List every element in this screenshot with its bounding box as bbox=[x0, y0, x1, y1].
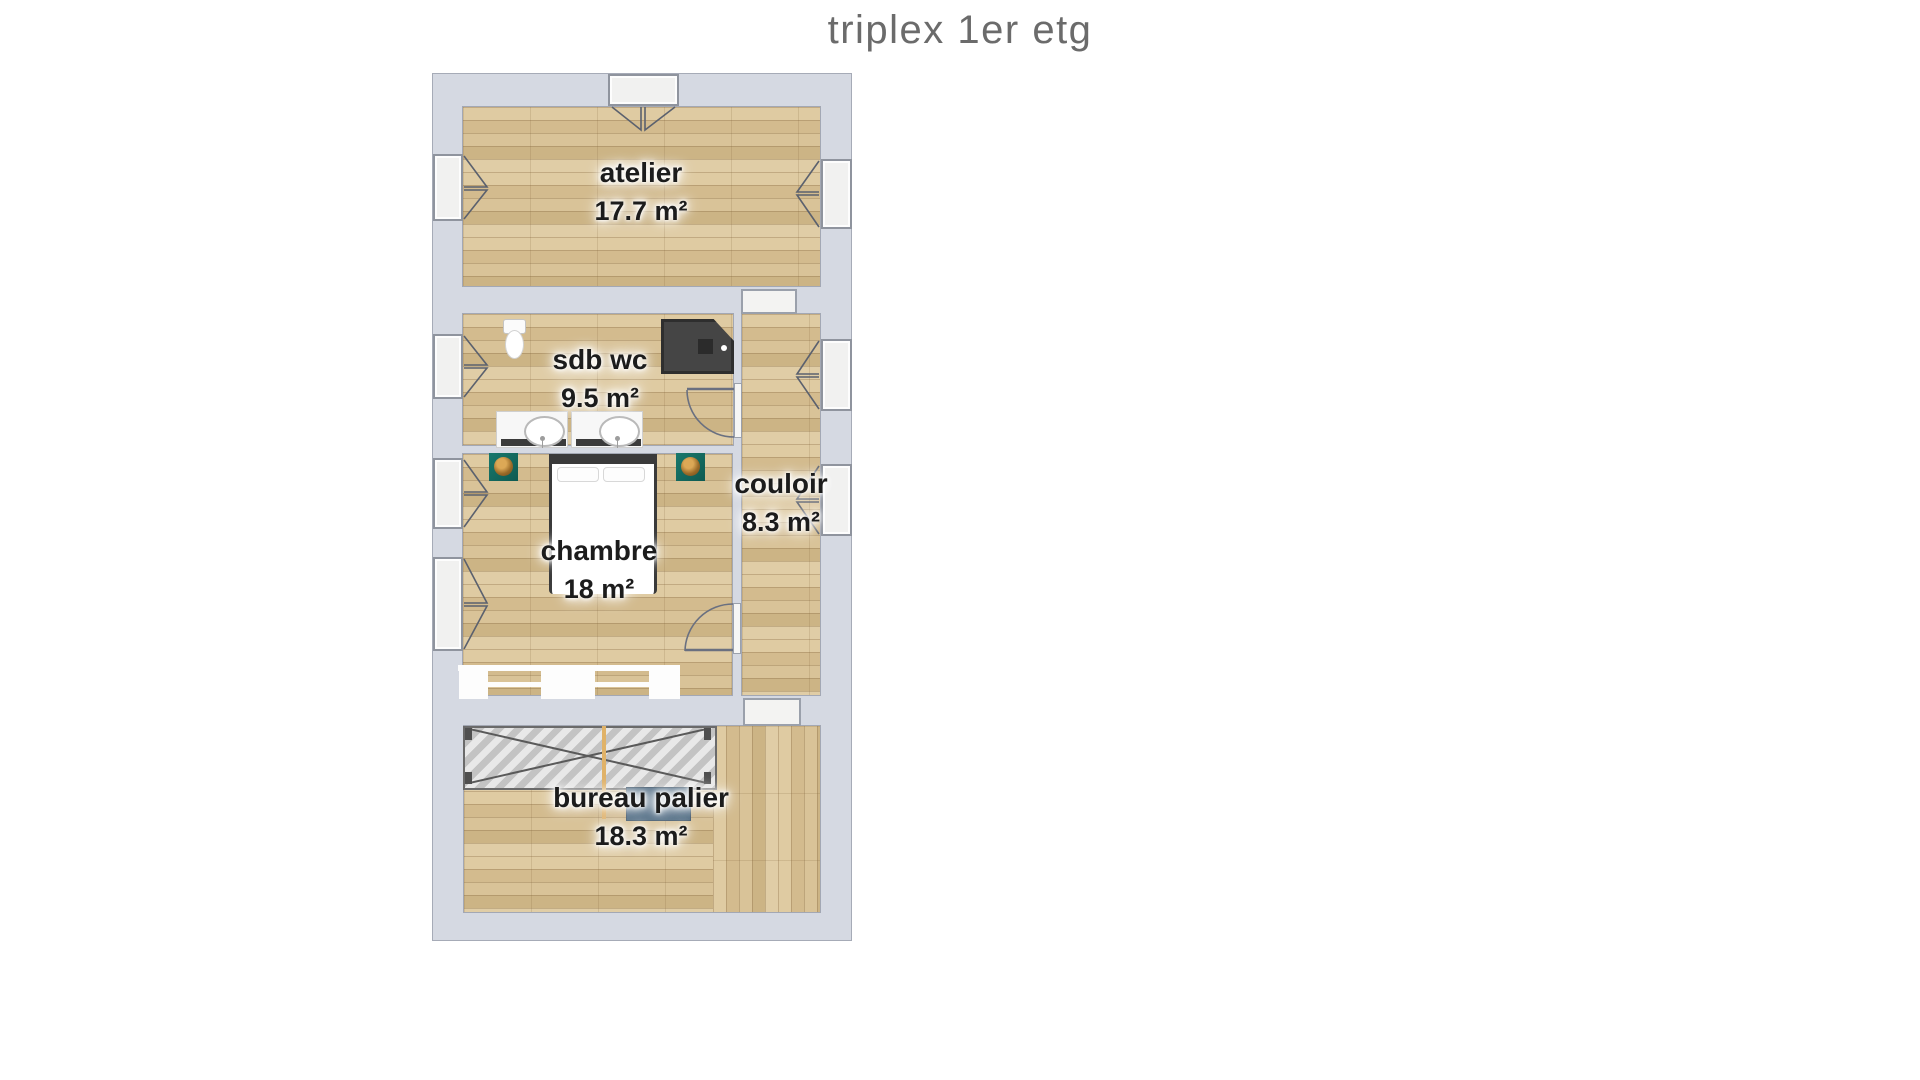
wardrobe-shelf bbox=[488, 682, 541, 687]
passage-couloir-bureau[interactable] bbox=[743, 698, 801, 726]
wardrobe-module bbox=[459, 671, 488, 699]
stair-opening-hatch[interactable] bbox=[463, 726, 717, 790]
vanity-sink-right[interactable] bbox=[571, 411, 643, 448]
hatch-corner bbox=[465, 772, 472, 784]
bureau-vertical-parquet bbox=[713, 726, 820, 912]
window-sdb-left[interactable] bbox=[433, 334, 463, 399]
floorplan-page: triplex 1er etg bbox=[0, 0, 1920, 1080]
pillow-icon bbox=[557, 467, 599, 482]
vanity-sink-left[interactable] bbox=[496, 411, 568, 448]
nightstand-left[interactable] bbox=[489, 453, 518, 481]
lamp-icon bbox=[681, 457, 700, 476]
sink-basin-icon bbox=[524, 416, 565, 447]
faucet-icon bbox=[540, 436, 545, 441]
sink-basin-icon bbox=[599, 416, 640, 447]
faucet-icon bbox=[615, 436, 620, 441]
wardrobe-module bbox=[649, 671, 680, 699]
shower-head-icon bbox=[721, 345, 727, 351]
window-couloir-right-a[interactable] bbox=[821, 339, 852, 411]
hatch-corner bbox=[704, 728, 711, 740]
plan-title: triplex 1er etg bbox=[0, 8, 1920, 53]
hatch-corner bbox=[465, 728, 472, 740]
passage-atelier-couloir[interactable] bbox=[741, 289, 797, 314]
window-chambre-left-b[interactable] bbox=[433, 557, 463, 651]
nightstand-right[interactable] bbox=[676, 453, 705, 481]
window-atelier-right[interactable] bbox=[821, 159, 852, 229]
wardrobe[interactable] bbox=[458, 665, 680, 699]
lamp-icon bbox=[494, 457, 513, 476]
label-atelier: atelier 17.7 m² bbox=[594, 158, 687, 226]
label-bureau-palier: bureau palier 18.3 m² bbox=[553, 783, 729, 851]
label-chambre: chambre 18 m² bbox=[541, 536, 658, 604]
wardrobe-module bbox=[541, 671, 595, 699]
label-couloir: couloir 8.3 m² bbox=[734, 469, 827, 537]
pillow-icon bbox=[603, 467, 645, 482]
door-sdb[interactable] bbox=[734, 383, 742, 438]
label-sdb-wc: sdb wc 9.5 m² bbox=[553, 345, 648, 413]
toilet[interactable] bbox=[503, 319, 524, 358]
window-chambre-left-a[interactable] bbox=[433, 458, 463, 529]
shower-drain-icon bbox=[698, 339, 713, 354]
toilet-bowl bbox=[505, 330, 524, 359]
window-atelier-left[interactable] bbox=[433, 154, 463, 221]
door-chambre[interactable] bbox=[733, 603, 741, 654]
wardrobe-shelf bbox=[595, 682, 649, 687]
hatch-cross-icon bbox=[465, 728, 711, 784]
window-atelier-top[interactable] bbox=[608, 74, 679, 106]
floorplan: atelier 17.7 m² sdb wc 9.5 m² couloir 8.… bbox=[432, 73, 852, 941]
